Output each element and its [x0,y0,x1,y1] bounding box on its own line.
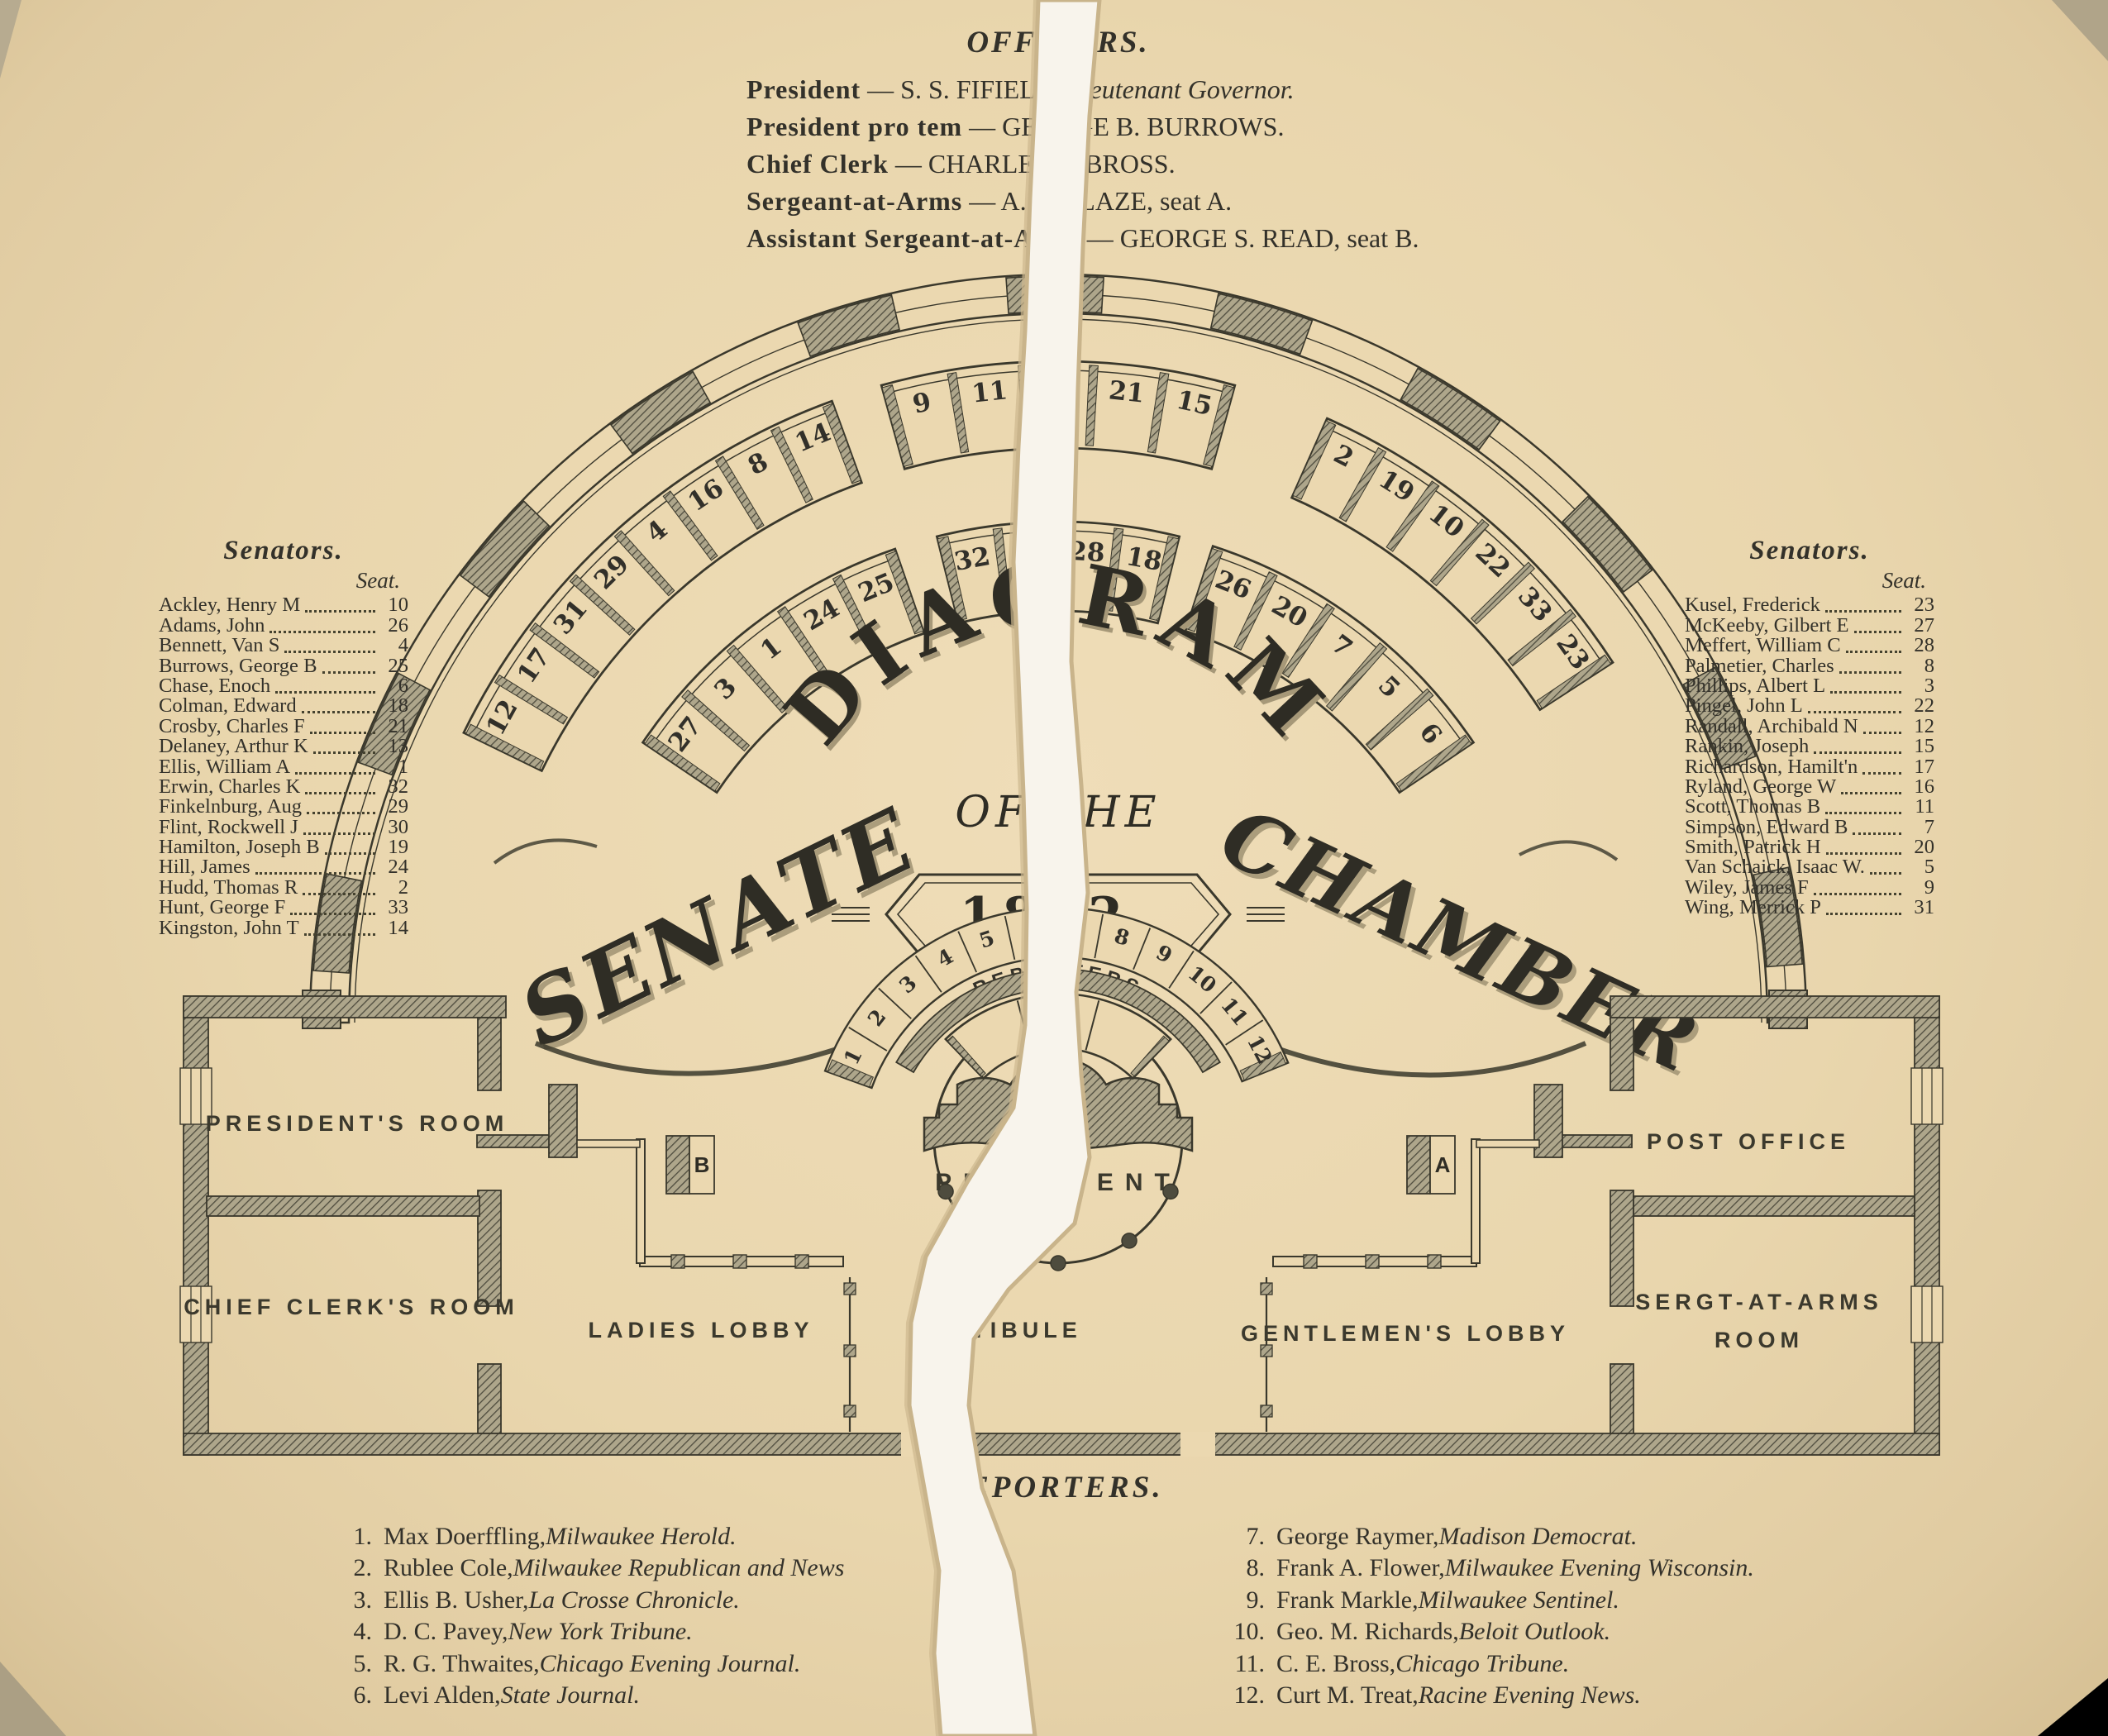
reporter-number: 3. [329,1585,372,1616]
wall [478,1364,501,1433]
room-label-vestibule: VESTIBULE [912,1318,1082,1343]
dotted-leader [1808,711,1901,713]
reporter-row: 1.Max Doerffling, Milwaukee Herold. [329,1521,844,1552]
dotted-leader [322,671,376,674]
dotted-leader [1830,691,1901,694]
officer-title: Chief Clerk [746,149,889,179]
reporter-newspaper: New York Tribune. [508,1616,693,1648]
reporter-number: 2. [329,1552,372,1584]
reporter-number: 7. [1222,1521,1265,1552]
reporter-number: 12. [1222,1680,1265,1711]
officer-title: Sergeant-at-Arms [746,186,962,216]
reporter-row: 6.Levi Alden, State Journal. [329,1680,844,1711]
dotted-leader [303,832,375,835]
dotted-leader [305,792,375,794]
president-platform [924,1058,1192,1151]
officer-name: — GEORGE S. READ, seat B. [1080,223,1419,253]
officer-detail: Lieutenant Governor. [1068,74,1295,104]
swash [1519,842,1617,860]
room-label-presidents-room: PRESIDENT'S ROOM [206,1111,508,1136]
dotted-leader [307,812,375,814]
reporter-row: 8.Frank A. Flower, Milwaukee Evening Wis… [1222,1552,1754,1584]
rail-stub [577,1140,640,1147]
senator-name: Kingston, John T [159,917,299,940]
reporter-name: Ellis B. Usher, [384,1585,528,1616]
reporter-newspaper: Milwaukee Republican and News [513,1552,845,1584]
wall [549,1085,577,1157]
enclosure-post [1122,1233,1137,1248]
reporter-number: 1. [329,1521,372,1552]
dotted-leader [325,852,375,855]
dotted-leader [1854,631,1901,633]
seat-number: 11 [971,375,1009,408]
senators-right-column: Senators. Seat. Kusel, Frederick23McKeeb… [1685,536,1934,919]
officer-name: — CHARLES E. BROSS. [889,149,1176,179]
seat-box-b-hatch [666,1136,689,1194]
rail-post [1304,1255,1317,1268]
reporter-row: 5.R. G. Thwaites, Chicago Evening Journa… [329,1648,844,1680]
window [1911,1068,1943,1124]
dotted-leader [284,651,375,653]
reporter-name: George Raymer, [1276,1521,1439,1552]
officer-title: Assistant Sergeant-at-Arms [746,223,1080,253]
dotted-leader [1826,852,1901,855]
wall-block [1562,497,1652,592]
seat-box-a-label: A [1435,1152,1451,1177]
reporter-name: Geo. M. Richards, [1276,1616,1459,1648]
reporter-row: 7.George Raymer, Madison Democrat. [1222,1521,1754,1552]
officer-name: — A. T. GLAZE, seat A. [962,186,1232,216]
reporter-seat-number: 7 [1069,916,1085,941]
reporter-newspaper: Milwaukee Sentinel. [1419,1585,1619,1616]
door-gap [1180,1432,1215,1457]
dotted-leader [304,933,375,936]
corner-shadow [0,1662,66,1736]
corner-shadow [2052,0,2108,61]
reporter-name: Rublee Cole, [384,1552,513,1584]
reporter-number: 10. [1222,1616,1265,1648]
window [1911,1286,1943,1343]
colonnade-post [1261,1345,1272,1357]
dotted-leader [302,711,375,713]
senator-seat-number: 31 [1905,896,1934,919]
rail-post [1428,1255,1441,1268]
rail-return [1471,1139,1480,1263]
seat-box-a-hatch [1407,1136,1430,1194]
reporter-number: 8. [1222,1552,1265,1584]
reporter-newspaper: Milwaukee Herold. [546,1521,737,1552]
dotted-leader [1853,832,1901,835]
reporter-name: C. E. Bross, [1276,1648,1395,1680]
wall [1610,1190,1633,1306]
wall [477,1135,550,1147]
post-office-top-wall [1610,996,1939,1018]
reporter-name: Frank A. Flower, [1276,1552,1445,1584]
dotted-leader [290,913,375,915]
wall [1559,1135,1632,1147]
officer-entry: President pro tem — GEORGE B. BURROWS. [746,108,1419,145]
rail-return [637,1139,645,1263]
swash [494,840,597,863]
reporter-row: 4.D. C. Pavey, New York Tribune. [329,1616,844,1648]
reporter-row: 10.Geo. M. Richards, Beloit Outlook. [1222,1616,1754,1648]
senators-right-rows: Kusel, Frederick23McKeeby, Gilbert E27Me… [1685,597,1934,919]
officer-entry: Sergeant-at-Arms — A. T. GLAZE, seat A. [746,183,1419,220]
rail-post [1366,1255,1379,1268]
senators-left-heading: Senators. [159,536,408,566]
colonnade-post [1261,1405,1272,1417]
room-label-ladies-lobby: LADIES LOBBY [588,1318,813,1343]
colonnade-post [844,1405,856,1417]
dotted-leader [269,631,375,633]
reporter-newspaper: La Crosse Chronicle. [528,1585,739,1616]
dotted-leader [305,610,375,613]
senator-name: Wing, Merrick P [1685,896,1821,919]
reporter-name: R. G. Thwaites, [384,1648,540,1680]
dotted-leader [1863,732,1901,734]
officer-name: — GEORGE B. BURROWS. [962,112,1284,141]
dotted-leader [303,893,375,895]
reporter-row: 9.Frank Markle, Milwaukee Sentinel. [1222,1585,1754,1616]
room-label-sergt-at-arms: SERGT-AT-ARMS [1635,1290,1883,1314]
reporter-name: Levi Alden, [384,1680,501,1711]
reporters-list-right: 7.George Raymer, Madison Democrat.8.Fran… [1222,1521,1754,1711]
room-label-sergt-at-arms-room: ROOM [1715,1328,1804,1352]
officer-title: President pro tem [746,112,962,141]
right-outer-wall [1915,996,1939,1455]
senators-right-seat-label: Seat. [1685,568,1934,594]
wall [478,1190,501,1306]
dotted-leader [1841,792,1901,794]
wall [1610,1364,1633,1433]
dotted-leader [1846,651,1901,653]
reporter-newspaper: State Journal. [501,1680,640,1711]
reporter-row: 11.C. E. Bross, Chicago Tribune. [1222,1648,1754,1680]
dotted-leader [310,732,375,734]
reporters-heading: REPORTERS. [847,1470,1261,1505]
reporter-row: 3.Ellis B. Usher, La Crosse Chronicle. [329,1585,844,1616]
senators-left-column: Senators. Seat. Ackley, Henry M10Adams, … [159,536,408,940]
senator-row: Wing, Merrick P31 [1685,899,1934,919]
room-label-gentlemens-lobby: GENTLEMEN'S LOBBY [1241,1321,1570,1346]
reporters-list-left: 1.Max Doerffling, Milwaukee Herold.2.Rub… [329,1521,844,1711]
dotted-leader [1839,671,1901,674]
room-label-chief-clerks-room: CHIEF CLERK'S ROOM [184,1295,518,1319]
corner-shadow [0,0,21,79]
senators-left-rows: Ackley, Henry M10Adams, John26Bennett, V… [159,597,408,940]
dotted-leader [255,872,375,875]
colonnade-post [844,1283,856,1295]
corner-shadow [2038,1678,2108,1736]
reporter-number: 4. [329,1616,372,1648]
reporter-row: 2.Rublee Cole, Milwaukee Republican and … [329,1552,844,1584]
door-gap [901,1432,936,1457]
reporter-name: Frank Markle, [1276,1585,1419,1616]
officer-name: — S. S. FIFIELD, [861,74,1068,104]
colonnade-post [1261,1283,1272,1295]
seat-number: 21 [1107,375,1146,408]
left-outer-wall [184,996,208,1455]
reporter-seat-divider [1054,910,1055,955]
dotted-leader [313,751,375,754]
rail-stub [1476,1140,1539,1147]
presidents-room-top-wall [184,996,506,1018]
dotted-leader [1825,812,1901,814]
officers-list: President — S. S. FIFIELD, Lieutenant Go… [746,71,1419,257]
reporter-seat-number: 6 [1023,917,1040,942]
dotted-leader [1826,913,1901,915]
dotted-leader [1870,872,1901,875]
rail-post [733,1255,746,1268]
enclosure-post [1051,1256,1066,1271]
officers-heading: OFFICERS. [827,25,1290,60]
reporter-newspaper: Madison Democrat. [1439,1521,1638,1552]
dotted-leader [275,691,375,694]
senator-row: Kingston, John T14 [159,919,408,939]
rail-post [671,1255,684,1268]
wall-block [1006,276,1104,313]
senators-right-heading: Senators. [1685,536,1934,566]
reporter-newspaper: Racine Evening News. [1419,1680,1641,1711]
reporter-name: Max Doerffling, [384,1521,546,1552]
seat-box-b-label: B [694,1152,710,1177]
officer-title: President [746,74,861,104]
reporter-name: Curt M. Treat, [1276,1680,1419,1711]
page: 1217312941681491113211521910223323273124… [0,0,2108,1736]
reporter-name: D. C. Pavey, [384,1616,508,1648]
reporter-number: 11. [1222,1648,1265,1680]
right-room-divider [1633,1196,1915,1216]
reporter-number: 9. [1222,1585,1265,1616]
reporter-number: 6. [329,1680,372,1711]
seat-number: 13 [1040,374,1075,403]
title-of-the: OF THE [955,788,1161,837]
reporter-row: 12.Curt M. Treat, Racine Evening News. [1222,1680,1754,1711]
dotted-leader [1814,751,1901,754]
reporter-newspaper: Chicago Evening Journal. [540,1648,801,1680]
bottom-wall [184,1433,1939,1455]
left-room-divider [207,1196,479,1216]
reporter-newspaper: Milwaukee Evening Wisconsin. [1445,1552,1754,1584]
dotted-leader [295,772,375,775]
dotted-leader [1862,772,1901,775]
reporter-newspaper: Beloit Outlook. [1459,1616,1610,1648]
senators-left-seat-label: Seat. [159,568,408,594]
officer-entry: President — S. S. FIFIELD, Lieutenant Go… [746,71,1419,108]
wall-block [460,501,550,597]
officer-entry: Chief Clerk — CHARLES E. BROSS. [746,145,1419,183]
officer-entry: Assistant Sergeant-at-Arms — GEORGE S. R… [746,220,1419,257]
colonnade-post [844,1345,856,1357]
room-label-post-office: POST OFFICE [1647,1129,1850,1154]
president-label: PRESIDENT [935,1169,1181,1196]
wall [478,1018,501,1090]
dotted-leader [1825,610,1901,613]
wall [1610,1018,1633,1090]
enclosure-post [980,1233,994,1248]
senator-seat-number: 14 [379,917,408,940]
reporter-newspaper: Chicago Tribune. [1395,1648,1569,1680]
rail-post [795,1255,808,1268]
dotted-leader [1814,893,1901,895]
title-chamber: CHAMBER [1207,789,1713,1092]
reporter-number: 5. [329,1648,372,1680]
